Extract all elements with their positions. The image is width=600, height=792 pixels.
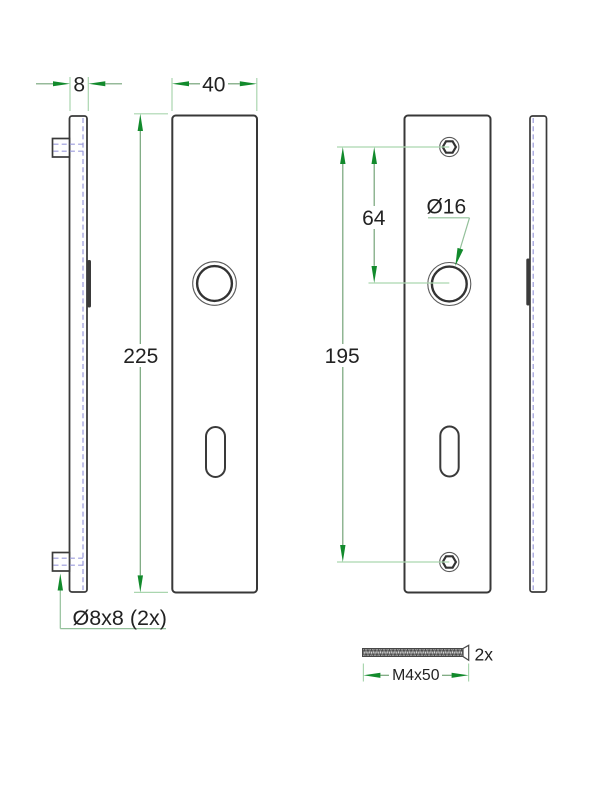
svg-text:8: 8 bbox=[73, 73, 85, 96]
svg-text:M4x50: M4x50 bbox=[392, 667, 440, 684]
svg-text:225: 225 bbox=[123, 345, 158, 368]
svg-text:Ø16: Ø16 bbox=[426, 196, 466, 219]
svg-text:Ø8x8 (2x): Ø8x8 (2x) bbox=[73, 606, 167, 630]
svg-text:64: 64 bbox=[362, 207, 386, 230]
svg-text:195: 195 bbox=[325, 345, 360, 368]
svg-text:2x: 2x bbox=[475, 645, 494, 665]
svg-text:40: 40 bbox=[202, 73, 225, 96]
